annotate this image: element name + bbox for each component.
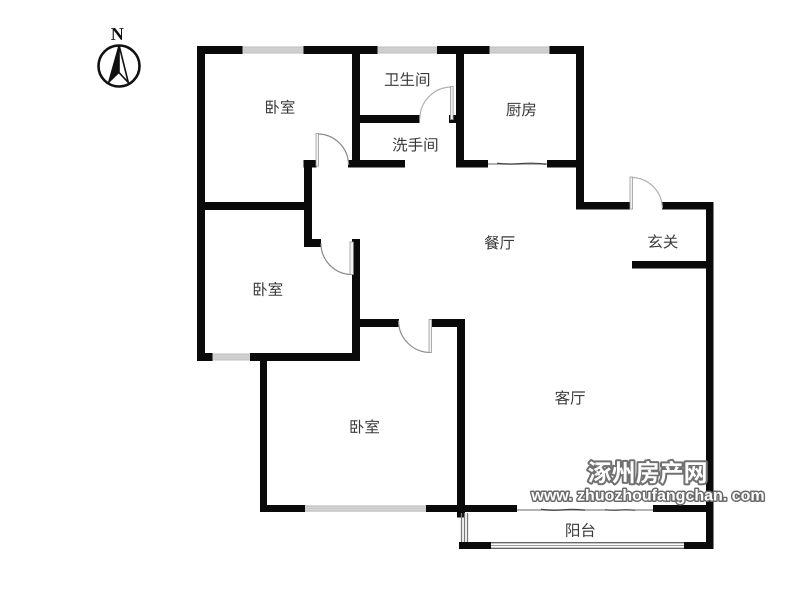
svg-text:www. zhuozhoufangchan. com: www. zhuozhoufangchan. com bbox=[530, 488, 764, 505]
